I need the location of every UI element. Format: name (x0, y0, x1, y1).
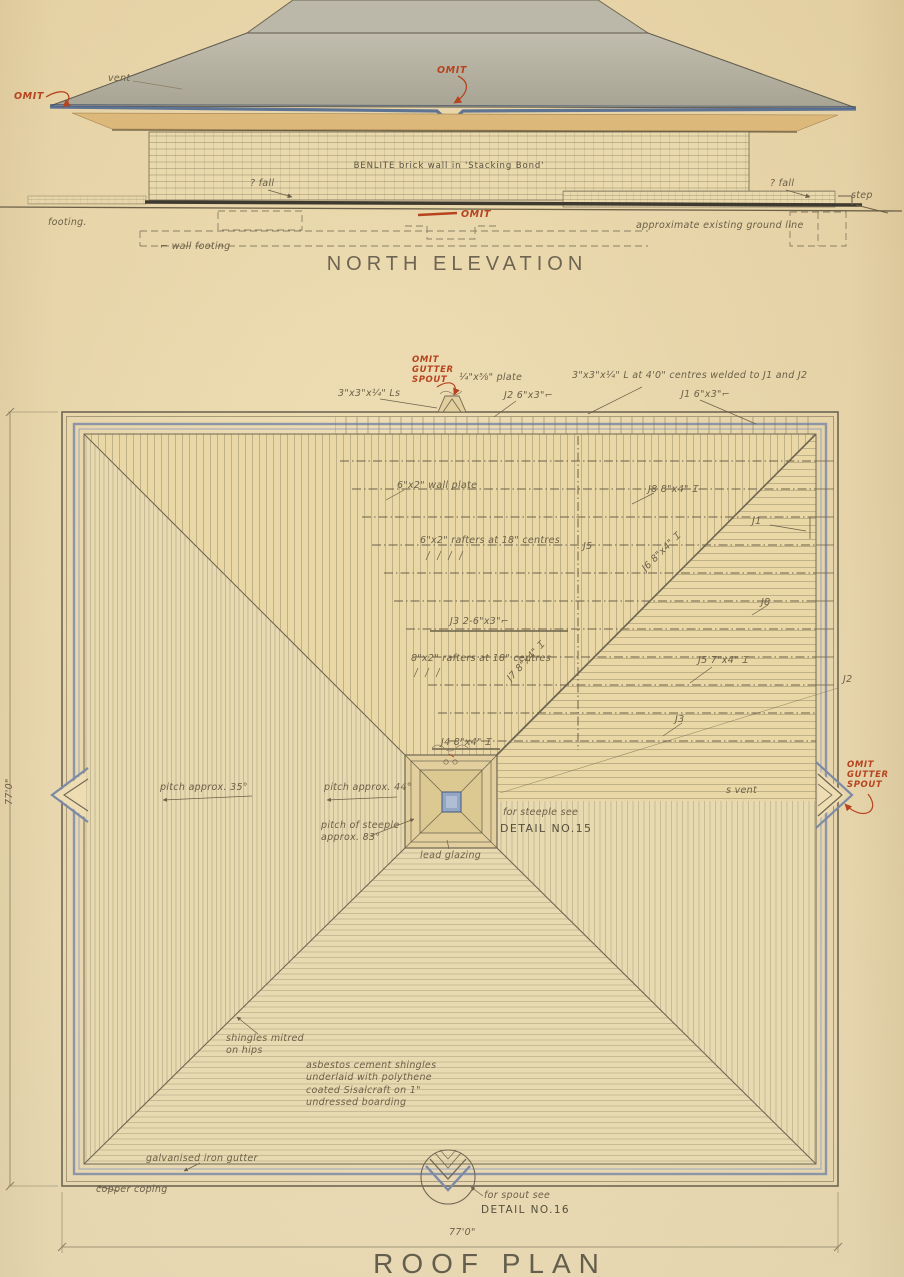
lead-glazing-label: lead glazing (420, 850, 481, 862)
omit-bottom: OMIT (461, 210, 491, 221)
wall-plate-label: 6"x2" wall plate (397, 480, 477, 492)
rafters-label-1: 6"x2" rafters at 18" centres (420, 535, 560, 547)
roof-plan-title: ROOF PLAN (360, 1248, 620, 1277)
j2-top-label: J2 6"x3"⌐ (504, 390, 553, 402)
spout-detail-ref: DETAIL NO.16 (481, 1204, 570, 1218)
j3-small-label: J3 (675, 714, 684, 726)
omit-gutter-spout-right: OMIT GUTTER SPOUT (847, 761, 889, 790)
architectural-drawing-sheet: ventOMITOMITBENLITE brick wall in 'Stack… (0, 0, 904, 1277)
annotation-labels: ventOMITOMITBENLITE brick wall in 'Stack… (0, 0, 904, 1277)
gutter-label: galvanised iron gutter (146, 1153, 258, 1165)
fall-left: ? fall (250, 178, 274, 190)
pitch-steeple-label: pitch of steeple approx. 83° (321, 820, 400, 845)
angle-centres-label: 3"x3"x¼" L at 4'0" centres welded to J1 … (572, 370, 807, 382)
dim-bottom: 77'0" (449, 1227, 476, 1239)
wall-footing-label: ⌐ wall footing (160, 241, 230, 253)
wall-material: BENLITE brick wall in 'Stacking Bond' (299, 161, 599, 172)
vent-label: vent (108, 73, 130, 85)
steeple-detail-ref: DETAIL NO.15 (500, 822, 592, 836)
coping-label: copper coping (96, 1184, 168, 1196)
omit-left: OMIT (14, 92, 44, 103)
pitch-35-label: pitch approx. 35° (160, 782, 248, 794)
ground-line-label: approximate existing ground line (636, 220, 804, 232)
shingles-mitred-label: shingles mitred on hips (226, 1033, 304, 1058)
j6-diagonal-label: J6 8"x4" Ɪ (640, 531, 684, 575)
angle-cleats-label: 3"x3"x¼" Ls (338, 388, 400, 400)
step-label: step (851, 190, 873, 202)
j5-right-label: J5 7"x4" Ɪ (698, 655, 748, 667)
j2-right-label: J2 (843, 674, 852, 686)
j4-member-label: J4 8"x4" Ɪ (441, 737, 491, 749)
j8-right-label: J8 (761, 597, 770, 609)
omit-top: OMIT (437, 66, 467, 77)
omit-gutter-spout-top: OMIT GUTTER SPOUT (412, 356, 454, 385)
j3-member-label: J3 2-6"x3"⌐ (450, 616, 509, 628)
steeple-see-label: for steeple see (503, 807, 578, 819)
j5-mid-label: J5 (583, 541, 592, 553)
dim-left: 77'0" (4, 778, 16, 805)
j1-top-label: J1 6"x3"⌐ (681, 389, 730, 401)
j1-right-label: J1 (752, 516, 761, 528)
footing-label: footing. (48, 217, 87, 229)
j8-upper-label: J8 8"x4" Ɪ (648, 484, 698, 496)
fall-right: ? fall (770, 178, 794, 190)
pitch-44-label: pitch approx. 44° (324, 782, 412, 794)
plate-label: ¼"x⅝" plate (459, 372, 522, 384)
asbestos-label: asbestos cement shingles underlaid with … (306, 1060, 436, 1109)
spout-see-label: for spout see (484, 1190, 550, 1202)
north-elevation-title: NORTH ELEVATION (297, 253, 617, 276)
vent-right-label: s vent (726, 785, 757, 797)
